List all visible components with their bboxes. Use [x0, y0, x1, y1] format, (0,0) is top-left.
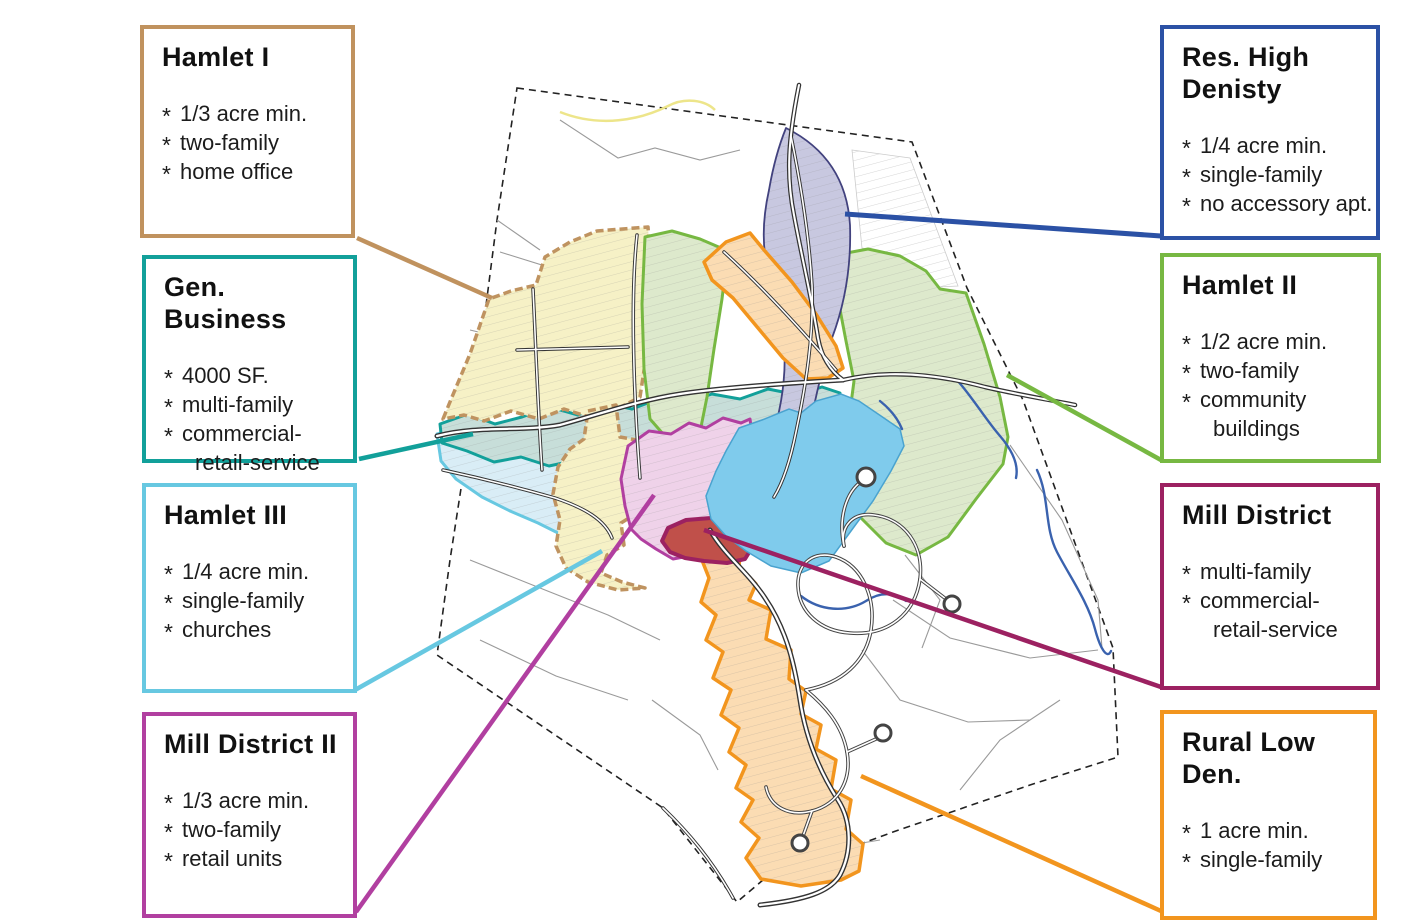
callout-item: *multi-family	[164, 390, 345, 419]
callout-title: Rural Low Den.	[1182, 726, 1365, 790]
field-line	[862, 650, 1030, 722]
callout-item: retail-service	[164, 448, 345, 477]
callout-item: *1/3 acre min.	[164, 786, 345, 815]
cul-de-sac-centre	[795, 838, 805, 848]
star-bullet-icon: *	[1182, 134, 1191, 163]
cul-de-sac-centre	[860, 471, 872, 483]
callout-item: *two-family	[164, 815, 345, 844]
field-line	[1010, 445, 1102, 648]
star-bullet-icon: *	[1182, 560, 1191, 589]
field-line	[652, 700, 718, 770]
callout-item: *community	[1182, 385, 1369, 414]
star-bullet-icon: *	[164, 589, 173, 618]
star-bullet-icon: *	[164, 818, 173, 847]
cul-de-sac-centre	[947, 599, 957, 609]
callout-hamlet-2: Hamlet II *1/2 acre min. *two-family *co…	[1160, 253, 1381, 463]
callout-item: *home office	[162, 157, 343, 186]
field-line	[480, 640, 628, 700]
star-bullet-icon: *	[1182, 359, 1191, 388]
callout-mill-district: Mill District *multi-family *commercial-…	[1160, 483, 1380, 690]
star-bullet-icon: *	[164, 364, 173, 393]
callout-title: Mill District	[1182, 499, 1368, 531]
star-bullet-icon: *	[1182, 819, 1191, 848]
callout-item: *two-family	[162, 128, 343, 157]
callout-item: *two-family	[1182, 356, 1369, 385]
callout-item: *4000 SF.	[164, 361, 345, 390]
leader-mill-district-2	[356, 495, 654, 912]
callout-rural-low-density: Rural Low Den. *1 acre min. *single-fami…	[1160, 710, 1377, 920]
callout-hamlet-3: Hamlet III *1/4 acre min. *single-family…	[142, 483, 357, 693]
star-bullet-icon: *	[1182, 388, 1191, 417]
callout-item: *commercial-	[1182, 586, 1368, 615]
callout-item: retail-service	[1182, 615, 1368, 644]
callout-item: *no accessory apt.	[1182, 189, 1368, 218]
field-line	[960, 700, 1060, 790]
star-bullet-icon: *	[162, 131, 171, 160]
callout-item: *1/3 acre min.	[162, 99, 343, 128]
star-bullet-icon: *	[164, 789, 173, 818]
callout-mill-district-2: Mill District II *1/3 acre min. *two-fam…	[142, 712, 357, 918]
star-bullet-icon: *	[1182, 330, 1191, 359]
callout-item: *single-family	[1182, 845, 1365, 874]
callout-title: Res. High Denisty	[1182, 41, 1368, 105]
callout-gen-business: Gen. Business *4000 SF. *multi-family *c…	[142, 255, 357, 463]
stream-below-lake	[801, 594, 906, 609]
callout-item: *single-family	[164, 586, 345, 615]
star-bullet-icon: *	[164, 422, 173, 451]
star-bullet-icon: *	[1182, 192, 1191, 221]
callout-title: Gen. Business	[164, 271, 345, 335]
callout-item: *1/4 acre min.	[1182, 131, 1368, 160]
subdivision-stem-a	[847, 739, 876, 752]
star-bullet-icon: *	[162, 160, 171, 189]
field-line	[497, 220, 540, 250]
callout-title: Mill District II	[164, 728, 345, 760]
star-bullet-icon: *	[164, 393, 173, 422]
callout-item: buildings	[1182, 414, 1369, 443]
leader-hamlet-1	[357, 238, 492, 298]
callout-item: *multi-family	[1182, 557, 1368, 586]
leader-rural-low-density	[861, 776, 1161, 911]
cul-de-sac-centre	[878, 728, 888, 738]
field-line	[560, 120, 740, 160]
subdivision-stem-b	[920, 579, 946, 599]
callout-item: *1/4 acre min.	[164, 557, 345, 586]
zone-rural-low-density-south-parcels	[694, 531, 863, 886]
callout-title: Hamlet I	[162, 41, 343, 73]
star-bullet-icon: *	[1182, 163, 1191, 192]
star-bullet-icon: *	[164, 618, 173, 647]
callout-res-high-density: Res. High Denisty *1/4 acre min. *single…	[1160, 25, 1380, 240]
callout-item: *commercial-	[164, 419, 345, 448]
callout-item: *churches	[164, 615, 345, 644]
callout-item: *1/2 acre min.	[1182, 327, 1369, 356]
callout-item: *single-family	[1182, 160, 1368, 189]
star-bullet-icon: *	[162, 102, 171, 131]
star-bullet-icon: *	[164, 847, 173, 876]
callout-item: *retail units	[164, 844, 345, 873]
callout-title: Hamlet II	[1182, 269, 1369, 301]
star-bullet-icon: *	[1182, 848, 1191, 877]
callout-title: Hamlet III	[164, 499, 345, 531]
zoning-map-figure: Hamlet I *1/3 acre min. *two-family *hom…	[0, 0, 1401, 923]
star-bullet-icon: *	[1182, 589, 1191, 618]
star-bullet-icon: *	[164, 560, 173, 589]
callout-hamlet-1: Hamlet I *1/3 acre min. *two-family *hom…	[140, 25, 355, 238]
callout-item: *1 acre min.	[1182, 816, 1365, 845]
